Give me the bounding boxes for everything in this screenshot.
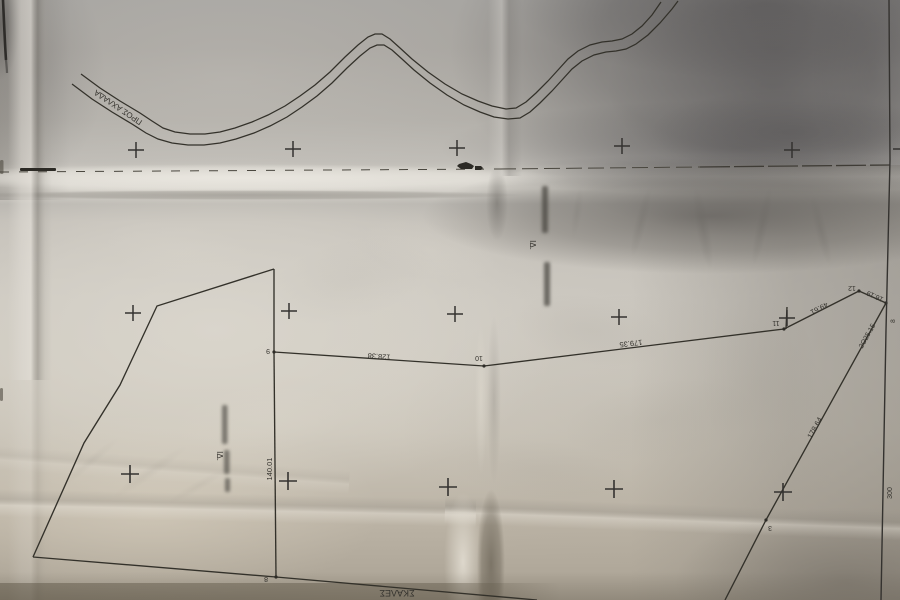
svg-text:128.38: 128.38: [367, 351, 391, 362]
svg-text:140.01: 140.01: [265, 458, 274, 481]
svg-text:12: 12: [848, 284, 856, 291]
svg-text:ΙΔ.: ΙΔ.: [215, 451, 224, 461]
svg-text:300: 300: [887, 487, 894, 499]
svg-text:ΙΔ.: ΙΔ.: [528, 240, 537, 250]
svg-text:9: 9: [266, 347, 270, 354]
svg-text:ΣΚΑΛΕΣ: ΣΚΑΛΕΣ: [379, 588, 415, 598]
svg-text:3: 3: [768, 524, 772, 531]
svg-text:8: 8: [264, 575, 268, 582]
svg-text:8: 8: [890, 319, 897, 323]
svg-text:11: 11: [772, 319, 779, 326]
svg-text:10: 10: [475, 354, 483, 361]
